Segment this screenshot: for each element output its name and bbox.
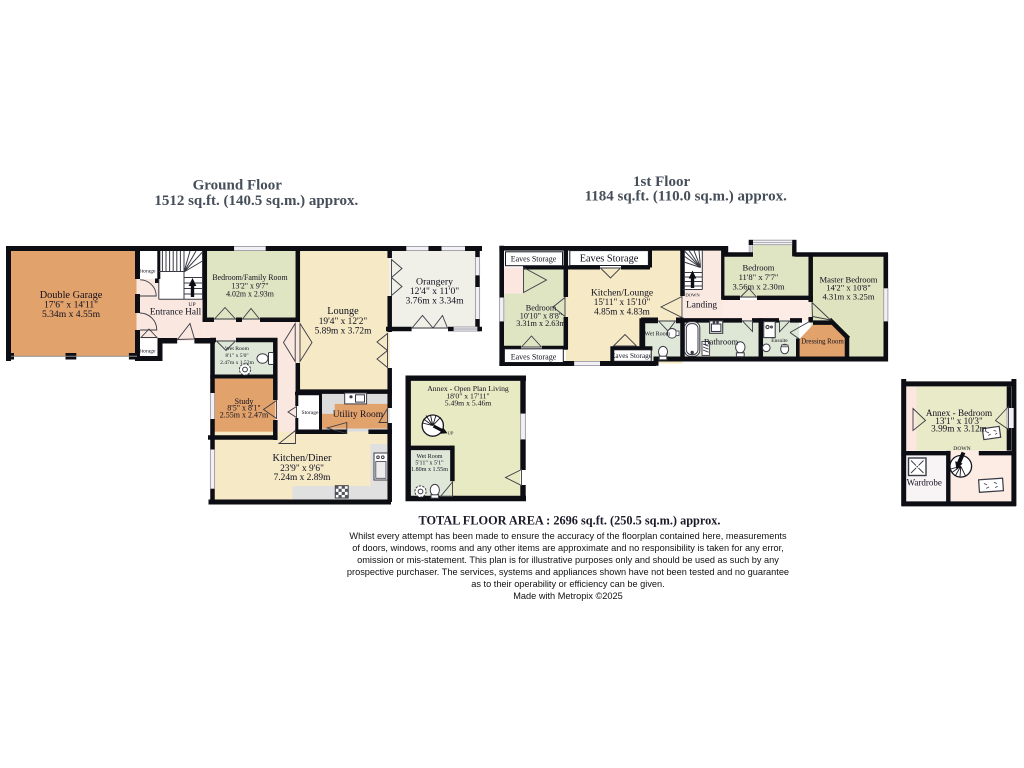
- svg-text:Eaves Storage: Eaves Storage: [580, 254, 639, 265]
- svg-text:5'11" x 5'1": 5'11" x 5'1": [415, 461, 444, 467]
- svg-text:Eaves Storage: Eaves Storage: [511, 353, 557, 362]
- svg-text:Storage: Storage: [301, 410, 319, 416]
- svg-text:Wet Room: Wet Room: [645, 331, 671, 337]
- svg-text:4.85m x 4.83m: 4.85m x 4.83m: [594, 306, 650, 316]
- svg-text:1184 sq.ft. (110.0 sq.m.) appr: 1184 sq.ft. (110.0 sq.m.) approx.: [585, 189, 788, 205]
- svg-text:Entrance Hall: Entrance Hall: [150, 308, 202, 318]
- svg-text:5.34m x 4.55m: 5.34m x 4.55m: [42, 309, 101, 320]
- svg-text:19'4" x 12'2": 19'4" x 12'2": [319, 317, 368, 327]
- svg-text:Landing: Landing: [686, 301, 717, 311]
- svg-text:Storage: Storage: [138, 269, 156, 275]
- svg-text:Utility Room: Utility Room: [333, 410, 384, 420]
- svg-text:of doors, windows, rooms and a: of doors, windows, rooms and any other i…: [352, 543, 784, 553]
- svg-text:omission or mis-statement. Thi: omission or mis-statement. This plan is …: [357, 555, 779, 565]
- svg-text:4.31m x 3.25m: 4.31m x 3.25m: [822, 291, 874, 301]
- svg-text:1512 sq.ft. (140.5 sq.m.) appr: 1512 sq.ft. (140.5 sq.m.) approx.: [154, 193, 358, 209]
- svg-text:3.56m x 2.30m: 3.56m x 2.30m: [732, 282, 784, 292]
- svg-text:DOWN: DOWN: [953, 446, 970, 452]
- svg-text:2.55m x 2.47m: 2.55m x 2.47m: [220, 411, 269, 420]
- svg-text:Wet Room: Wet Room: [225, 346, 250, 352]
- svg-text:Dressing Room: Dressing Room: [801, 338, 844, 345]
- svg-text:Ensuite: Ensuite: [771, 338, 788, 344]
- svg-text:Bathroom: Bathroom: [704, 336, 739, 346]
- svg-text:2.47m x 1.52m: 2.47m x 1.52m: [220, 360, 255, 366]
- svg-text:Storage: Storage: [138, 349, 156, 355]
- svg-text:Eaves Storage: Eaves Storage: [611, 352, 652, 360]
- svg-text:1.80m x 1.55m: 1.80m x 1.55m: [411, 467, 448, 473]
- svg-text:TOTAL FLOOR AREA : 2696 sq.ft.: TOTAL FLOOR AREA : 2696 sq.ft. (250.5 sq…: [419, 513, 721, 527]
- svg-text:UP: UP: [448, 430, 454, 435]
- svg-text:DOWN: DOWN: [685, 292, 700, 297]
- svg-text:Ground Floor: Ground Floor: [193, 178, 283, 194]
- svg-text:3.31m x 2.63m: 3.31m x 2.63m: [516, 319, 566, 328]
- svg-text:prospective purchaser. The ser: prospective purchaser. The services, sys…: [347, 567, 789, 577]
- svg-text:Lounge: Lounge: [327, 306, 359, 317]
- svg-text:as to their operability or eff: as to their operability or efficiency ca…: [471, 579, 664, 589]
- svg-text:Whilst every attempt has been: Whilst every attempt has been made to en…: [349, 531, 787, 541]
- svg-text:Made with Metropix ©2025: Made with Metropix ©2025: [513, 591, 622, 601]
- svg-text:5.89m x 3.72m: 5.89m x 3.72m: [315, 327, 372, 337]
- svg-text:Wet Room: Wet Room: [416, 454, 442, 460]
- svg-text:Eaves Storage: Eaves Storage: [511, 255, 557, 264]
- svg-text:5.49m x 5.46m: 5.49m x 5.46m: [445, 398, 492, 407]
- svg-text:11'8" x 7'7": 11'8" x 7'7": [739, 272, 779, 282]
- svg-text:Wardrobe: Wardrobe: [907, 478, 942, 488]
- svg-text:7.24m x 2.89m: 7.24m x 2.89m: [274, 473, 331, 483]
- svg-text:Kitchen/Diner: Kitchen/Diner: [273, 453, 332, 464]
- svg-text:8'1" x 5'0": 8'1" x 5'0": [225, 353, 248, 359]
- svg-text:1st Floor: 1st Floor: [633, 174, 690, 190]
- svg-text:4.02m x 2.93m: 4.02m x 2.93m: [226, 289, 275, 298]
- svg-text:Bedroom: Bedroom: [743, 263, 775, 273]
- svg-text:3.99m x 3.12m: 3.99m x 3.12m: [931, 424, 987, 434]
- svg-text:3.76m x 3.34m: 3.76m x 3.34m: [405, 296, 464, 307]
